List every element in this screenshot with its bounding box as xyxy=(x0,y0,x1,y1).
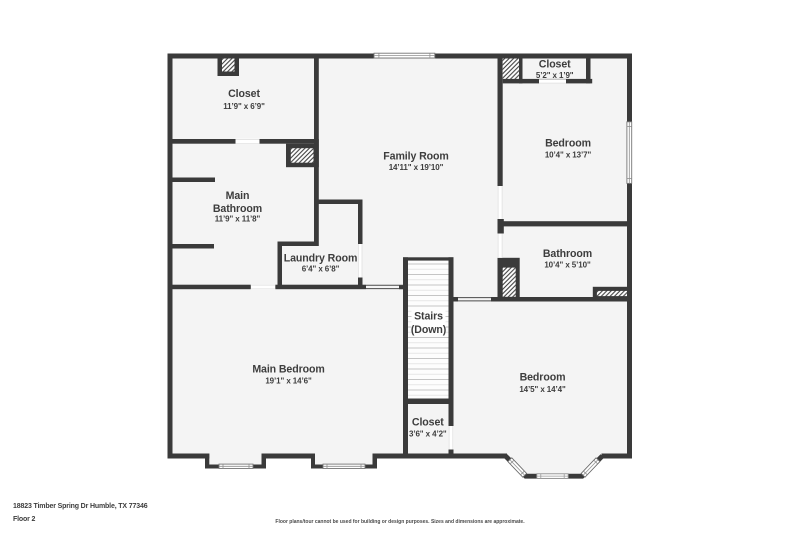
svg-text:11’9" x 6’9": 11’9" x 6’9" xyxy=(223,102,265,111)
svg-text:Bedroom: Bedroom xyxy=(520,372,566,384)
svg-text:Floor plans/tour cannot be use: Floor plans/tour cannot be used for buil… xyxy=(275,519,525,525)
svg-text:18823 Timber Spring Dr Humble,: 18823 Timber Spring Dr Humble, TX 77346 xyxy=(13,503,148,510)
svg-text:11’9" x 11’8": 11’9" x 11’8" xyxy=(215,215,261,224)
svg-text:19’1" x 14’6": 19’1" x 14’6" xyxy=(265,377,312,386)
svg-text:Laundry Room: Laundry Room xyxy=(284,253,358,265)
svg-text:Closet: Closet xyxy=(228,88,260,100)
svg-text:Bedroom: Bedroom xyxy=(545,138,591,150)
svg-text:Main Bedroom: Main Bedroom xyxy=(252,364,324,376)
svg-text:Floor 2: Floor 2 xyxy=(13,516,36,523)
svg-text:Bathroom: Bathroom xyxy=(213,203,262,215)
svg-text:Main: Main xyxy=(226,190,250,202)
svg-text:5’2" x 1’9": 5’2" x 1’9" xyxy=(536,71,574,80)
svg-text:Closet: Closet xyxy=(412,416,444,428)
svg-text:10’4" x 5’10": 10’4" x 5’10" xyxy=(544,261,591,270)
svg-text:Family Room: Family Room xyxy=(383,151,448,163)
svg-text:Closet: Closet xyxy=(539,59,571,71)
svg-text:Bathroom: Bathroom xyxy=(543,248,592,260)
svg-text:14’11" x 19’10": 14’11" x 19’10" xyxy=(389,163,444,172)
svg-text:6’4" x 6’8": 6’4" x 6’8" xyxy=(302,265,340,274)
svg-text:(Down): (Down) xyxy=(411,324,446,336)
svg-text:10’4" x 13’7": 10’4" x 13’7" xyxy=(545,151,592,160)
svg-text:Stairs: Stairs xyxy=(414,311,443,323)
svg-text:3’6" x 4’2": 3’6" x 4’2" xyxy=(409,430,447,439)
svg-text:14’5" x 14’4": 14’5" x 14’4" xyxy=(519,385,566,394)
